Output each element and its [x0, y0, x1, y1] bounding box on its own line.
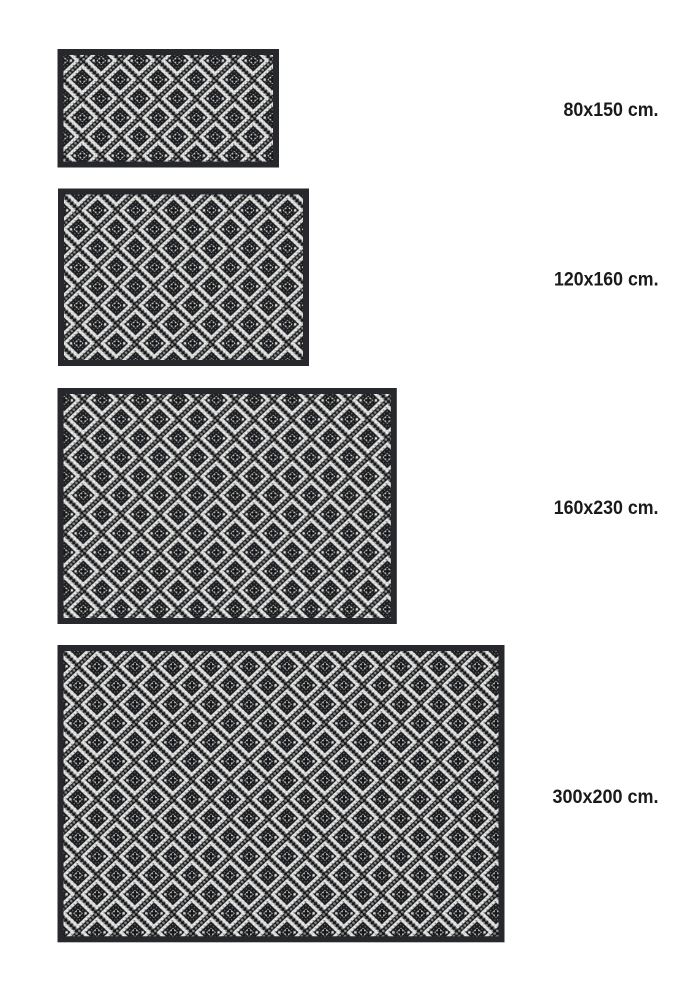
svg-text:160x230 cm.: 160x230 cm.: [554, 497, 659, 519]
svg-text:300x200 cm.: 300x200 cm.: [553, 786, 659, 808]
svg-text:80x150 cm.: 80x150 cm.: [564, 99, 659, 121]
svg-text:120x160 cm.: 120x160 cm.: [554, 269, 659, 291]
